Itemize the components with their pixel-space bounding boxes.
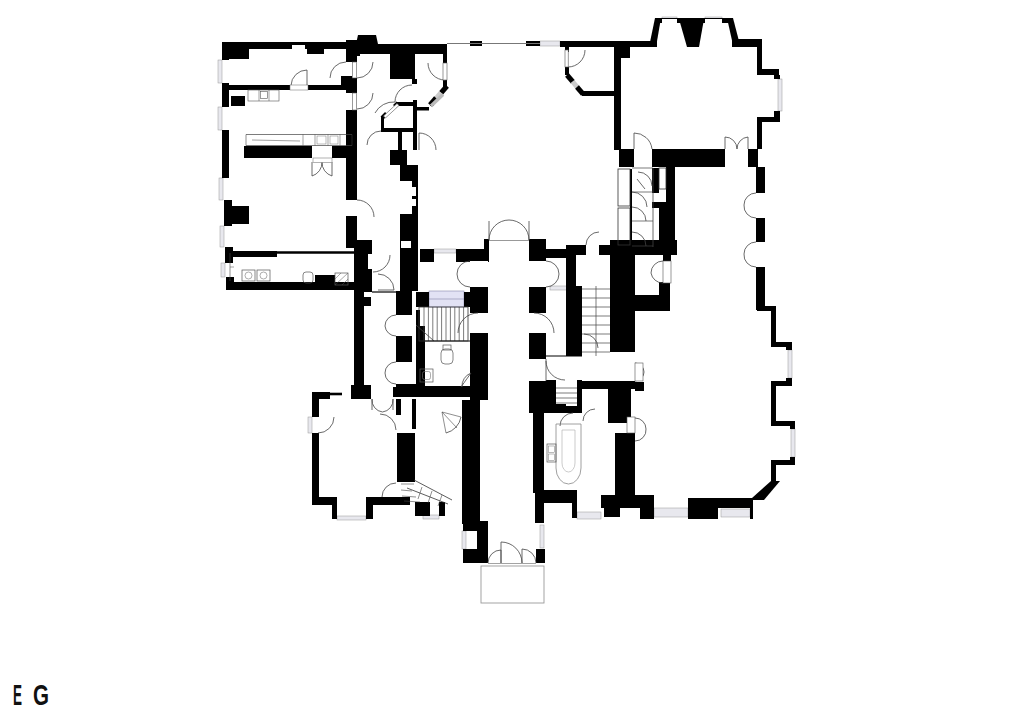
svg-text:E: E	[13, 678, 22, 711]
svg-text:G: G	[33, 678, 49, 711]
